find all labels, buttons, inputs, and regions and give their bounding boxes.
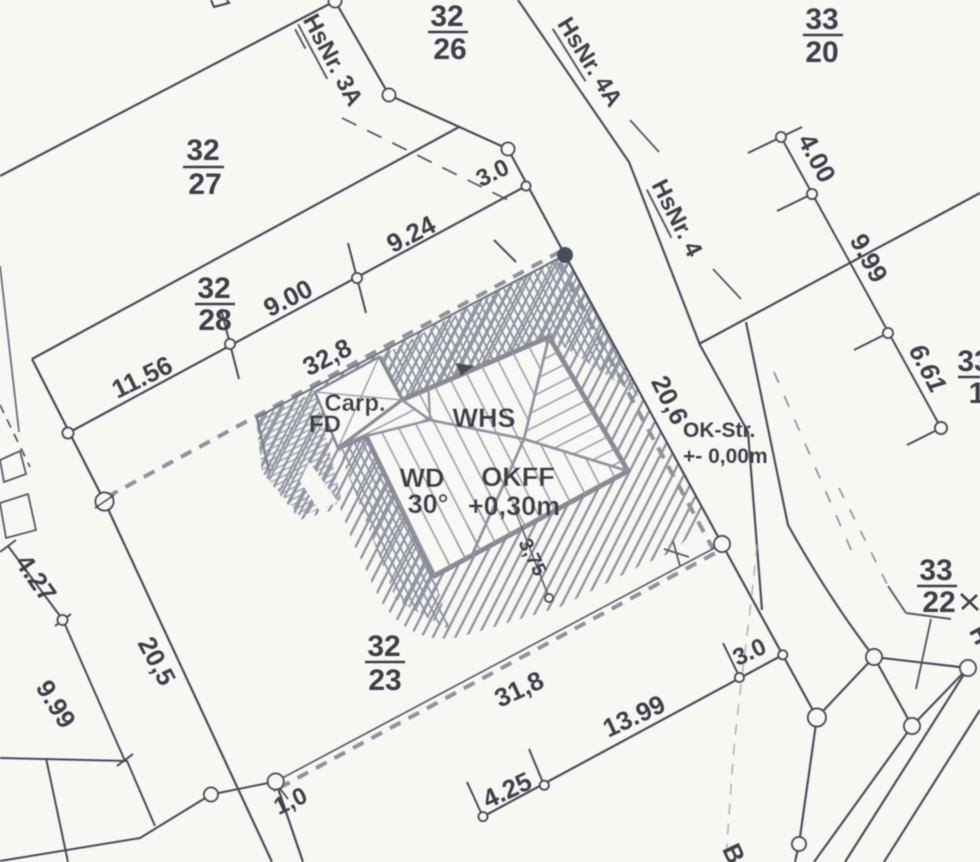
svg-text:+0,30m: +0,30m	[468, 491, 560, 521]
svg-text:33: 33	[805, 3, 838, 36]
svg-text:OK-Str.: OK-Str.	[683, 419, 755, 442]
svg-text:20: 20	[805, 36, 838, 69]
svg-text:30°: 30°	[408, 489, 449, 519]
svg-text:OKFF: OKFF	[481, 462, 555, 492]
svg-text:1: 1	[969, 377, 980, 410]
svg-text:27: 27	[188, 168, 221, 201]
svg-text:32: 32	[367, 630, 400, 663]
svg-text:32: 32	[430, 0, 463, 33]
svg-text:WHS: WHS	[453, 403, 516, 433]
svg-text:+- 0,00m: +- 0,00m	[683, 445, 768, 468]
svg-text:26: 26	[433, 33, 466, 66]
svg-text:33: 33	[919, 554, 952, 587]
svg-text:FD: FD	[309, 411, 341, 438]
svg-text:23: 23	[368, 664, 401, 697]
svg-text:32: 32	[197, 272, 230, 305]
svg-text:32: 32	[186, 134, 219, 167]
svg-text:33: 33	[957, 345, 980, 378]
svg-text:28: 28	[198, 304, 231, 337]
svg-text:22: 22	[922, 586, 955, 619]
